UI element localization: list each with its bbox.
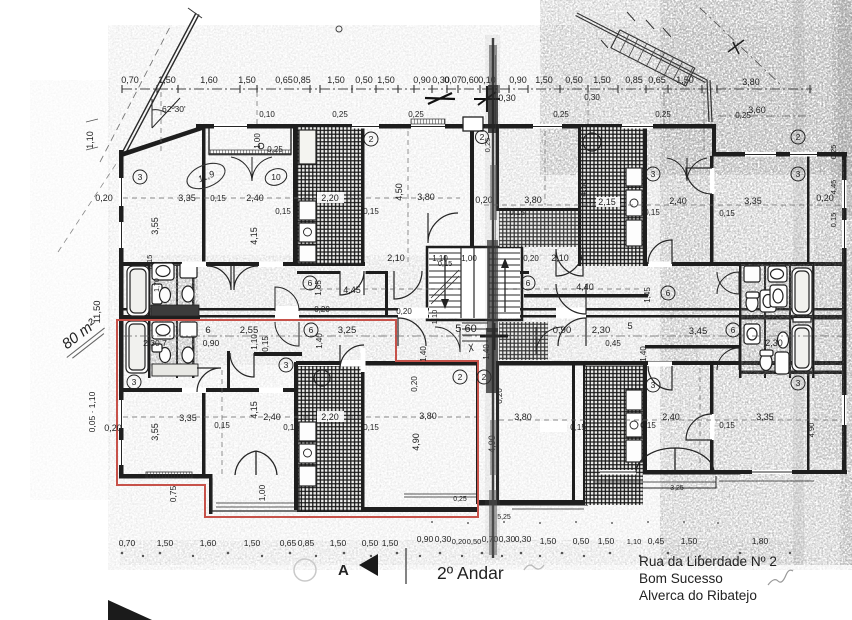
svg-text:4,45: 4,45 xyxy=(829,180,838,195)
svg-text:3,35: 3,35 xyxy=(178,193,196,203)
svg-text:2: 2 xyxy=(458,372,463,382)
svg-text:3,55: 3,55 xyxy=(150,423,160,441)
svg-text:0,50: 0,50 xyxy=(565,75,583,85)
svg-text:6: 6 xyxy=(731,325,736,335)
svg-text:0,15: 0,15 xyxy=(640,421,656,430)
svg-text:0,15: 0,15 xyxy=(509,208,525,217)
svg-text:4,50: 4,50 xyxy=(578,179,588,197)
svg-text:2,15: 2,15 xyxy=(598,197,616,207)
svg-text:4,40: 4,40 xyxy=(576,282,594,292)
svg-text:1,00: 1,00 xyxy=(253,133,262,149)
svg-text:0,25: 0,25 xyxy=(453,496,467,503)
svg-text:0,15: 0,15 xyxy=(283,423,299,432)
svg-text:3,80: 3,80 xyxy=(514,412,532,422)
svg-text:0,30: 0,30 xyxy=(498,93,516,103)
svg-text:3: 3 xyxy=(132,377,137,387)
svg-text:6: 6 xyxy=(666,288,671,298)
svg-text:6: 6 xyxy=(308,278,313,288)
svg-text:0,60: 0,60 xyxy=(461,75,479,85)
svg-text:1,50: 1,50 xyxy=(244,538,261,548)
svg-text:2,20: 2,20 xyxy=(321,193,339,203)
svg-text:3: 3 xyxy=(651,169,656,179)
svg-text:0,85: 0,85 xyxy=(293,75,311,85)
svg-text:1,00: 1,00 xyxy=(257,484,267,501)
svg-text:4,90: 4,90 xyxy=(411,433,421,451)
svg-text:0,50: 0,50 xyxy=(355,75,373,85)
svg-text:1,60: 1,60 xyxy=(200,538,217,548)
svg-text:2,10: 2,10 xyxy=(387,253,405,263)
svg-text:4,15: 4,15 xyxy=(249,401,259,419)
svg-text:62º30': 62º30' xyxy=(162,104,186,114)
svg-text:0,85: 0,85 xyxy=(298,538,315,548)
svg-text:1,50: 1,50 xyxy=(377,75,395,85)
svg-text:3,25: 3,25 xyxy=(670,485,684,492)
svg-text:0,20: 0,20 xyxy=(452,537,467,546)
svg-text:0,10: 0,10 xyxy=(259,110,275,119)
svg-text:0,20: 0,20 xyxy=(95,193,113,203)
svg-text:1,80: 1,80 xyxy=(752,536,769,546)
svg-text:6: 6 xyxy=(309,325,314,335)
svg-text:0,15: 0,15 xyxy=(363,423,379,432)
svg-text:Rua da Liberdade Nº 2: Rua da Liberdade Nº 2 xyxy=(639,554,777,569)
svg-text:2,10: 2,10 xyxy=(551,253,569,263)
svg-text:4,50: 4,50 xyxy=(394,183,404,201)
svg-text:2,30: 2,30 xyxy=(765,338,783,348)
svg-text:1,50: 1,50 xyxy=(681,536,698,546)
svg-text:0,25: 0,25 xyxy=(735,111,751,120)
svg-text:2,40: 2,40 xyxy=(263,412,281,422)
svg-text:0,15: 0,15 xyxy=(363,207,379,216)
svg-text:0,45: 0,45 xyxy=(605,339,621,348)
svg-text:1,10: 1,10 xyxy=(430,310,439,325)
svg-text:5 60: 5 60 xyxy=(455,323,476,335)
svg-text:0,90: 0,90 xyxy=(553,325,572,336)
svg-text:0,05 · 1,10: 0,05 · 1,10 xyxy=(87,391,97,432)
svg-text:2,30: 2,30 xyxy=(592,325,611,336)
svg-text:0,15: 0,15 xyxy=(570,423,586,432)
svg-text:3,80: 3,80 xyxy=(524,195,542,205)
svg-text:0,15: 0,15 xyxy=(261,336,270,352)
svg-text:1,10: 1,10 xyxy=(432,254,448,263)
svg-text:1,50: 1,50 xyxy=(157,538,174,548)
svg-text:1,70: 1,70 xyxy=(154,278,161,292)
svg-text:4,45: 4,45 xyxy=(343,285,361,295)
svg-text:3,35: 3,35 xyxy=(756,412,774,422)
svg-text:3,35: 3,35 xyxy=(744,196,762,206)
svg-text:2: 2 xyxy=(369,134,374,144)
svg-text:1,50: 1,50 xyxy=(540,536,557,546)
svg-text:0,30: 0,30 xyxy=(515,534,532,544)
svg-text:0,15: 0,15 xyxy=(145,255,154,270)
svg-text:4,15: 4,15 xyxy=(249,227,259,245)
svg-text:Bom Sucesso: Bom Sucesso xyxy=(639,571,723,586)
svg-text:0,70: 0,70 xyxy=(121,75,139,85)
svg-text:2,30 7: 2,30 7 xyxy=(143,338,167,348)
svg-text:0,25: 0,25 xyxy=(829,145,838,160)
svg-text:0,20: 0,20 xyxy=(396,307,412,316)
svg-text:0,25: 0,25 xyxy=(332,110,348,119)
svg-text:1,10: 1,10 xyxy=(85,131,95,149)
svg-text:0,15: 0,15 xyxy=(719,421,735,430)
svg-text:3,25: 3,25 xyxy=(338,325,357,336)
svg-text:3: 3 xyxy=(284,360,289,370)
svg-text:0,65: 0,65 xyxy=(648,75,666,85)
svg-text:3,60: 3,60 xyxy=(748,105,766,115)
svg-text:3: 3 xyxy=(796,169,801,179)
svg-text:1,10: 1,10 xyxy=(250,334,259,350)
svg-text:0,15: 0,15 xyxy=(214,421,230,430)
svg-text:3: 3 xyxy=(651,380,656,390)
svg-text:1,50: 1,50 xyxy=(593,75,611,85)
svg-text:1,50: 1,50 xyxy=(598,536,615,546)
svg-text:1,40: 1,40 xyxy=(639,346,648,362)
svg-text:1,10: 1,10 xyxy=(627,537,642,546)
svg-text:3: 3 xyxy=(138,172,143,182)
svg-text:0,15: 0,15 xyxy=(644,208,660,217)
svg-text:3,45: 3,45 xyxy=(689,326,708,337)
svg-text:0,15: 0,15 xyxy=(210,194,226,203)
svg-text:0,65: 0,65 xyxy=(275,75,293,85)
svg-text:2: 2 xyxy=(796,132,801,142)
svg-text:1,50: 1,50 xyxy=(330,538,347,548)
svg-text:0,45: 0,45 xyxy=(648,536,665,546)
svg-text:0,25: 0,25 xyxy=(655,110,671,119)
svg-text:0,50: 0,50 xyxy=(467,537,482,546)
svg-text:0,30: 0,30 xyxy=(435,534,452,544)
svg-text:10: 10 xyxy=(271,172,281,182)
svg-text:2: 2 xyxy=(480,132,485,142)
svg-text:0,85: 0,85 xyxy=(625,75,643,85)
svg-text:0,25: 0,25 xyxy=(553,110,569,119)
svg-text:0,90: 0,90 xyxy=(413,75,431,85)
svg-text:Alverca do Ribatejo: Alverca do Ribatejo xyxy=(639,588,757,603)
svg-text:0,07: 0,07 xyxy=(444,75,462,85)
svg-text:2,40: 2,40 xyxy=(669,196,687,206)
svg-text:6: 6 xyxy=(526,278,531,288)
svg-text:1,50: 1,50 xyxy=(382,538,399,548)
svg-text:0,70: 0,70 xyxy=(119,538,136,548)
svg-text:1,50: 1,50 xyxy=(327,75,345,85)
svg-text:0,15: 0,15 xyxy=(275,207,291,216)
svg-text:0,90: 0,90 xyxy=(417,534,434,544)
svg-text:0,90: 0,90 xyxy=(203,338,220,348)
svg-text:0,65: 0,65 xyxy=(280,538,297,548)
svg-text:0,25: 0,25 xyxy=(267,145,283,154)
svg-text:3,80: 3,80 xyxy=(742,77,760,87)
svg-text:1,60: 1,60 xyxy=(200,75,218,85)
svg-text:2,40: 2,40 xyxy=(662,412,680,422)
svg-text:2,40: 2,40 xyxy=(246,193,264,203)
svg-text:0,50: 0,50 xyxy=(573,536,590,546)
svg-text:0,20: 0,20 xyxy=(314,305,330,314)
svg-text:0,30: 0,30 xyxy=(584,93,600,102)
svg-text:3,55: 3,55 xyxy=(150,217,160,235)
svg-text:1,50: 1,50 xyxy=(238,75,256,85)
svg-text:0,20: 0,20 xyxy=(410,376,419,392)
svg-text:A: A xyxy=(338,562,349,579)
svg-text:0,15: 0,15 xyxy=(829,213,838,228)
svg-text:1,50: 1,50 xyxy=(535,75,553,85)
svg-text:5: 5 xyxy=(627,321,632,332)
svg-text:3: 3 xyxy=(796,378,801,388)
svg-text:3,35: 3,35 xyxy=(179,413,197,423)
svg-text:1,40: 1,40 xyxy=(419,346,428,362)
svg-text:1,45: 1,45 xyxy=(643,287,652,303)
svg-text:2,20: 2,20 xyxy=(321,412,339,422)
svg-text:4,90: 4,90 xyxy=(807,423,816,438)
svg-text:3,80: 3,80 xyxy=(417,192,435,202)
svg-text:1,00: 1,00 xyxy=(461,254,477,263)
svg-text:0,15: 0,15 xyxy=(719,209,735,218)
svg-text:0,50: 0,50 xyxy=(362,538,379,548)
svg-text:6: 6 xyxy=(205,325,210,336)
svg-text:0,90: 0,90 xyxy=(509,75,527,85)
svg-text:11,50: 11,50 xyxy=(92,300,103,323)
svg-text:0,75: 0,75 xyxy=(168,485,178,502)
svg-text:2º Andar: 2º Andar xyxy=(437,563,504,583)
svg-text:0,20: 0,20 xyxy=(104,423,122,433)
svg-text:0,20: 0,20 xyxy=(523,254,539,263)
svg-text:0,25: 0,25 xyxy=(408,110,424,119)
svg-text:0,30: 0,30 xyxy=(499,534,516,544)
svg-text:3,80: 3,80 xyxy=(419,411,437,421)
